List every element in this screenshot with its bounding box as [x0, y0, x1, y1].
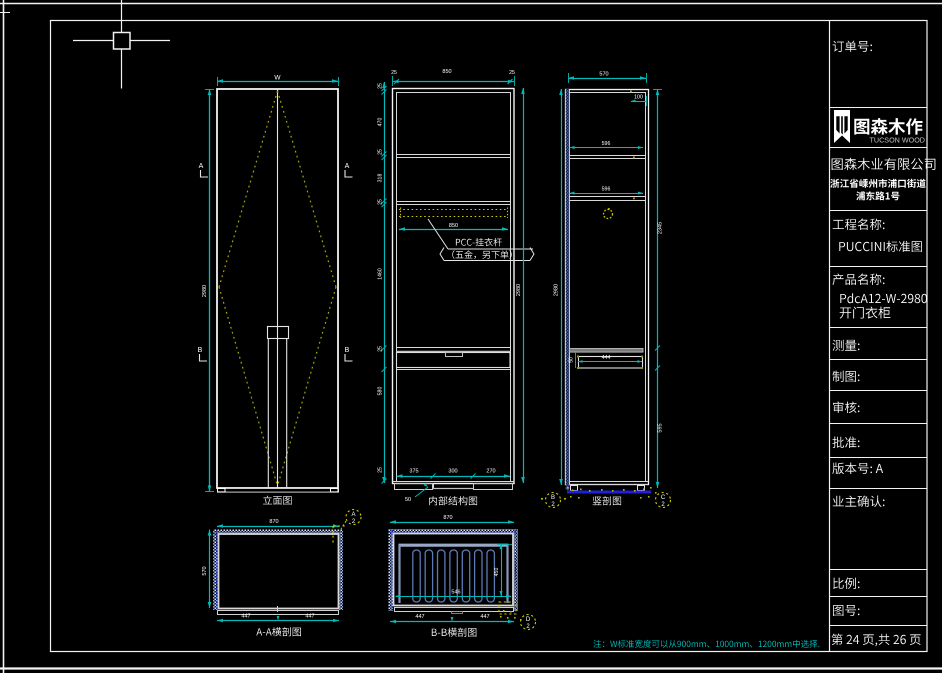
svg-text:596: 596	[602, 141, 611, 147]
svg-text:570: 570	[599, 72, 608, 78]
svg-text:447: 447	[305, 614, 314, 620]
svg-text:318: 318	[378, 174, 384, 183]
svg-text:D: D	[526, 617, 531, 623]
svg-text:546: 546	[451, 590, 460, 596]
svg-text:B: B	[345, 347, 350, 354]
svg-text:A: A	[351, 512, 355, 518]
svg-text:TUCSON WOOD: TUCSON WOOD	[870, 136, 926, 145]
svg-text:850: 850	[442, 69, 451, 75]
svg-text:A: A	[199, 163, 204, 170]
svg-text:2980: 2980	[554, 284, 560, 296]
svg-text:270: 270	[486, 469, 495, 475]
svg-text:50: 50	[405, 497, 411, 503]
svg-text:444: 444	[602, 355, 611, 361]
svg-text:W: W	[274, 75, 281, 82]
svg-text:870: 870	[443, 515, 452, 521]
svg-text:450: 450	[494, 568, 500, 577]
svg-text:25: 25	[378, 346, 384, 352]
svg-text:447: 447	[415, 614, 424, 620]
svg-text:100: 100	[634, 95, 643, 101]
svg-text:447: 447	[480, 614, 489, 620]
svg-text:25: 25	[391, 70, 397, 76]
svg-text:470: 470	[378, 118, 384, 127]
svg-text:25: 25	[378, 83, 384, 89]
svg-text:25: 25	[378, 467, 384, 473]
svg-text:1460: 1460	[378, 268, 384, 280]
svg-text:50: 50	[569, 357, 575, 363]
svg-text:870: 870	[269, 519, 278, 525]
svg-text:25: 25	[509, 70, 515, 76]
svg-text:A: A	[345, 163, 350, 170]
svg-text:B: B	[551, 495, 555, 501]
svg-text:C: C	[661, 495, 666, 501]
svg-text:25: 25	[378, 199, 384, 205]
svg-text:2980: 2980	[202, 285, 208, 297]
svg-text:595: 595	[658, 423, 664, 432]
svg-text:850: 850	[449, 223, 458, 229]
svg-text:570: 570	[202, 566, 208, 575]
svg-text:2980: 2980	[516, 284, 522, 296]
svg-text:580: 580	[378, 387, 384, 396]
svg-text:300: 300	[448, 469, 457, 475]
svg-text:2345: 2345	[658, 222, 664, 234]
svg-text:596: 596	[602, 187, 611, 193]
svg-text:B: B	[198, 347, 203, 354]
svg-text:25: 25	[378, 149, 384, 155]
svg-text:447: 447	[241, 614, 250, 620]
svg-text:375: 375	[409, 469, 418, 475]
